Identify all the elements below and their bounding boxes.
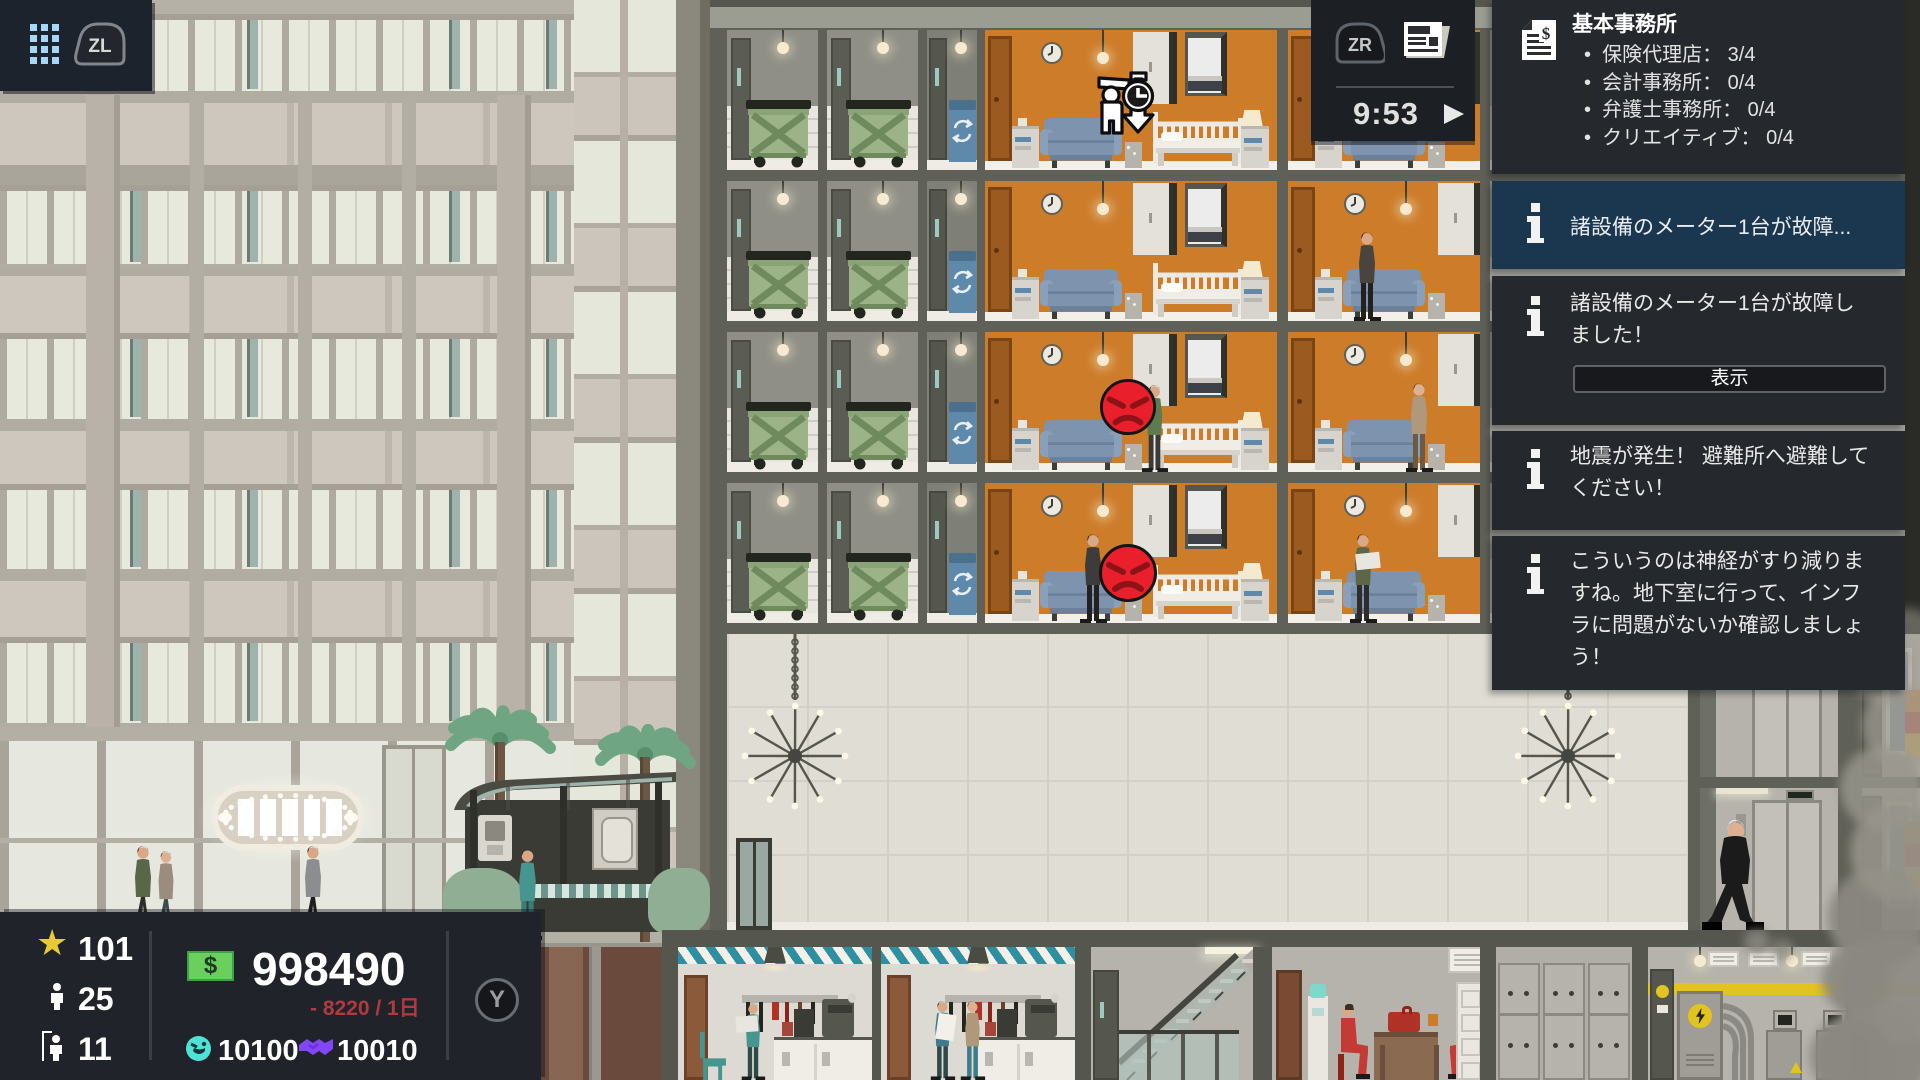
svg-text:ZR: ZR: [1348, 35, 1372, 55]
svg-text:$: $: [1542, 24, 1551, 43]
svg-text:ZL: ZL: [88, 36, 112, 57]
